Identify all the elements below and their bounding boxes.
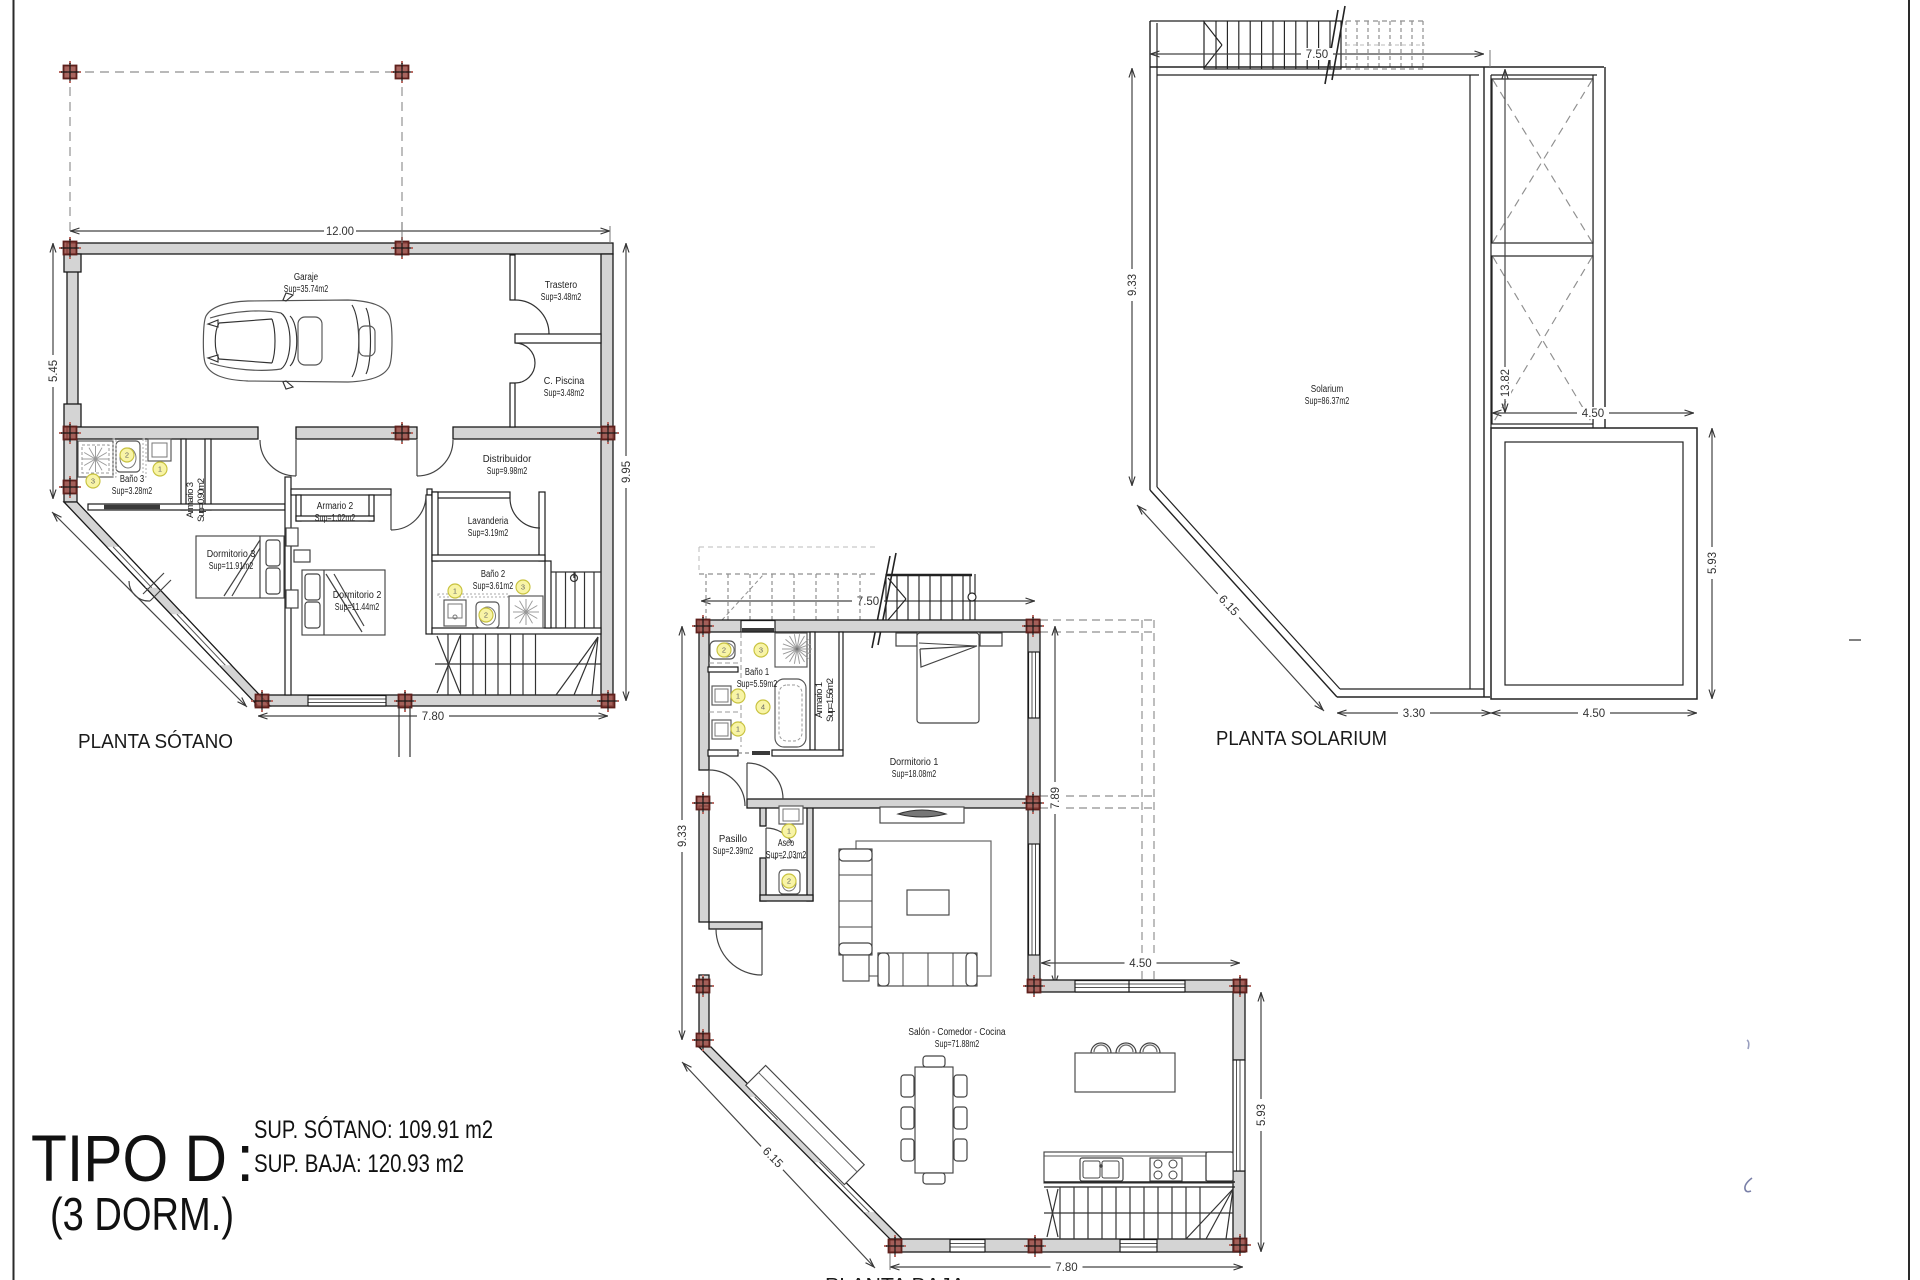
svg-text:Sup=18.08m2: Sup=18.08m2 — [892, 769, 937, 780]
svg-text:Baño 1: Baño 1 — [745, 667, 770, 678]
svg-text:PLANTA BAJA: PLANTA BAJA — [825, 1275, 966, 1280]
svg-text:1: 1 — [158, 465, 162, 474]
svg-text:(3 DORM.): (3 DORM.) — [50, 1188, 234, 1240]
svg-text:Sup=35.74m2: Sup=35.74m2 — [284, 284, 329, 295]
svg-text:Sup=3.48m2: Sup=3.48m2 — [544, 388, 585, 399]
svg-text:Sup=86.37m2: Sup=86.37m2 — [1305, 396, 1350, 407]
svg-text:1: 1 — [736, 725, 740, 734]
svg-text:Garaje: Garaje — [294, 272, 319, 283]
svg-text:4.50: 4.50 — [1583, 706, 1606, 720]
svg-text:Trastero: Trastero — [545, 280, 578, 291]
svg-text:Lavanderia: Lavanderia — [468, 516, 509, 527]
svg-text:7.80: 7.80 — [422, 709, 445, 723]
svg-text:7.80: 7.80 — [1055, 1260, 1078, 1274]
svg-text:Baño 3: Baño 3 — [120, 474, 145, 485]
svg-text:Sup=9.98m2: Sup=9.98m2 — [487, 466, 528, 477]
svg-text:Sup=5.59m2: Sup=5.59m2 — [737, 679, 778, 690]
svg-text:3.30: 3.30 — [1403, 706, 1426, 720]
svg-text:9.33: 9.33 — [675, 825, 689, 847]
svg-text:9.95: 9.95 — [619, 461, 633, 483]
svg-text:4: 4 — [761, 703, 765, 712]
svg-text:3: 3 — [521, 583, 525, 592]
svg-text:Salón - Comedor - Cocina: Salón - Comedor - Cocina — [908, 1027, 1006, 1038]
svg-text:2: 2 — [125, 451, 129, 460]
svg-text::: : — [236, 1121, 254, 1195]
svg-text:3: 3 — [91, 477, 95, 486]
svg-text:Baño 2: Baño 2 — [481, 569, 506, 580]
svg-text:Sup=71.88m2: Sup=71.88m2 — [935, 1039, 980, 1050]
svg-text:5.93: 5.93 — [1254, 1104, 1268, 1126]
svg-text:Sup=1.56m2: Sup=1.56m2 — [825, 678, 836, 722]
svg-text:Sup=2.03m2: Sup=2.03m2 — [766, 850, 807, 861]
svg-text:Sup=3.28m2: Sup=3.28m2 — [112, 486, 153, 497]
svg-text:Dormitorio 2: Dormitorio 2 — [333, 590, 382, 601]
svg-text:1: 1 — [736, 692, 740, 701]
svg-text:Sup=1.02m2: Sup=1.02m2 — [315, 513, 356, 524]
svg-text:5.45: 5.45 — [46, 360, 60, 382]
svg-text:Dormitorio 3: Dormitorio 3 — [207, 549, 256, 560]
svg-text:Sup=0.90m2: Sup=0.90m2 — [196, 478, 207, 522]
svg-text:TIPO D: TIPO D — [31, 1121, 227, 1195]
svg-text:3: 3 — [759, 646, 763, 655]
svg-text:4.50: 4.50 — [1129, 956, 1152, 970]
svg-text:PLANTA SOLARIUM: PLANTA SOLARIUM — [1216, 728, 1387, 750]
svg-text:C. Piscina: C. Piscina — [544, 376, 585, 387]
svg-text:Sup=3.48m2: Sup=3.48m2 — [541, 292, 582, 303]
svg-text:12.00: 12.00 — [326, 224, 354, 238]
svg-text:Armario 2: Armario 2 — [317, 501, 354, 512]
svg-text:Dormitorio 1: Dormitorio 1 — [890, 757, 939, 768]
svg-text:Sup=3.61m2: Sup=3.61m2 — [473, 581, 514, 592]
svg-text:Sup=11.44m2: Sup=11.44m2 — [335, 602, 380, 613]
svg-text:Sup=2.39m2: Sup=2.39m2 — [713, 846, 754, 857]
svg-text:Armario 1: Armario 1 — [814, 682, 825, 718]
svg-text:Pasillo: Pasillo — [719, 834, 748, 845]
svg-text:1: 1 — [787, 827, 791, 836]
svg-text:Distribuidor: Distribuidor — [483, 454, 532, 465]
svg-text:SUP. BAJA: 120.93 m2: SUP. BAJA: 120.93 m2 — [254, 1150, 464, 1178]
svg-text:1: 1 — [453, 587, 457, 596]
svg-text:Aseo: Aseo — [778, 838, 795, 849]
svg-text:SUP. SÓTANO: 109.91 m2: SUP. SÓTANO: 109.91 m2 — [254, 1115, 493, 1144]
svg-text:Armario 3: Armario 3 — [185, 482, 196, 518]
svg-text:Sup=3.19m2: Sup=3.19m2 — [468, 528, 509, 539]
svg-text:2: 2 — [787, 877, 791, 886]
svg-text:5.93: 5.93 — [1705, 552, 1719, 574]
svg-text:13.82: 13.82 — [1498, 369, 1512, 397]
svg-text:Solarium: Solarium — [1311, 384, 1343, 395]
svg-text:7.50: 7.50 — [1306, 47, 1329, 61]
svg-text:9.33: 9.33 — [1125, 274, 1139, 296]
svg-text:2: 2 — [484, 611, 488, 620]
svg-text:Sup=11.91m2: Sup=11.91m2 — [209, 561, 254, 572]
svg-text:7.89: 7.89 — [1048, 787, 1062, 809]
svg-text:4.50: 4.50 — [1582, 406, 1605, 420]
svg-text:PLANTA SÓTANO: PLANTA SÓTANO — [78, 730, 233, 753]
svg-text:2: 2 — [722, 646, 726, 655]
